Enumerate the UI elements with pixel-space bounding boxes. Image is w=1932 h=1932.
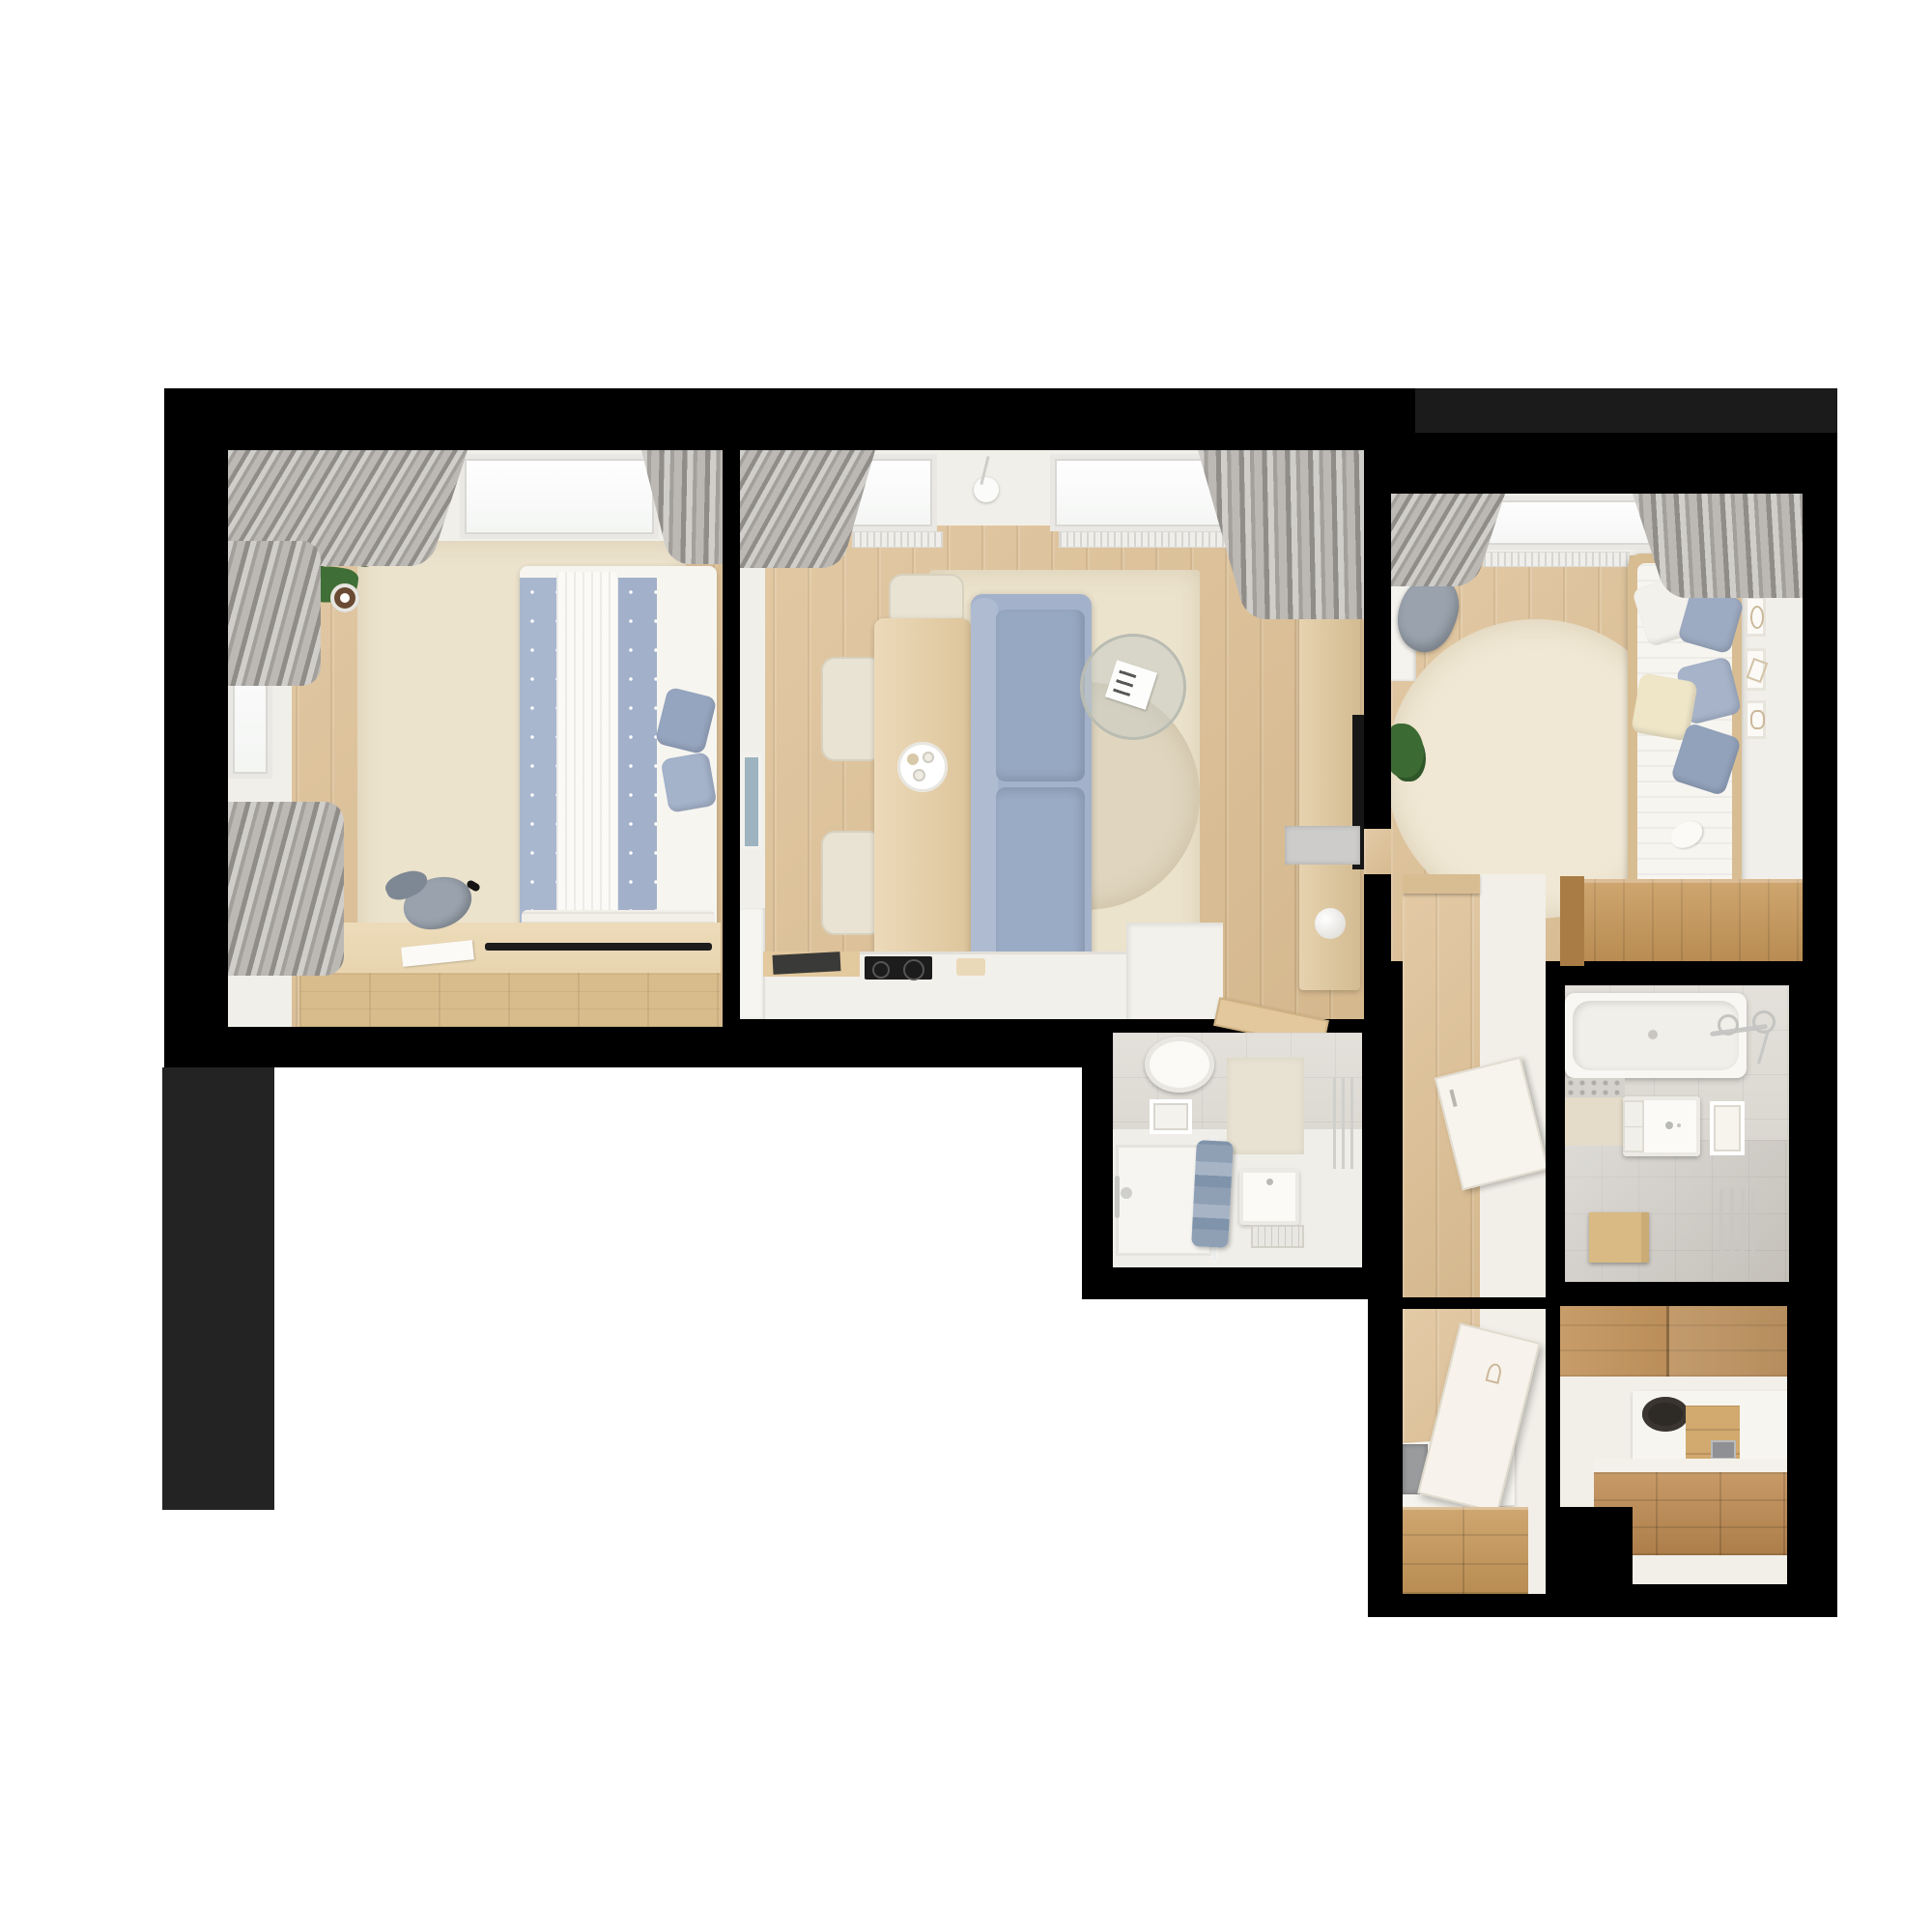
kitchen-block-right: [1126, 923, 1223, 1019]
hat: [1642, 1397, 1689, 1432]
sofa-cushion: [996, 610, 1085, 781]
bedroom-curtain-left: [228, 541, 321, 686]
dish-board: [773, 952, 841, 975]
towels: [1191, 1140, 1234, 1248]
bedroom-curtain-bottom-left: [228, 802, 344, 976]
wall-frame: [1745, 596, 1766, 637]
cabinet-light-door: [1669, 1306, 1787, 1377]
frame-art: [1750, 710, 1765, 729]
room-living-kitchen: [740, 450, 1364, 1019]
panel-hook: [1486, 1362, 1503, 1384]
room-closet: [1403, 1309, 1546, 1594]
bedroom-window-top: [460, 454, 659, 539]
living-curtain-left: [740, 450, 875, 568]
wooden-stool: [1589, 1212, 1649, 1263]
living-radiator-2: [1059, 531, 1244, 548]
bed-pillow: [655, 687, 718, 755]
entry-upper-cabinets: [1560, 1306, 1787, 1377]
shadow-block-left: [162, 1067, 274, 1510]
doormat: [1285, 826, 1360, 865]
shower-fixture: [1115, 1176, 1120, 1218]
basin-faucet: [1266, 1179, 1273, 1185]
closet-drawers: [1403, 1507, 1528, 1594]
cutting-board: [956, 958, 985, 976]
floor-drain: [1251, 1225, 1304, 1248]
small-device: [1711, 1440, 1736, 1460]
magazines: [1105, 660, 1157, 710]
washbasin: [1239, 1169, 1299, 1225]
kids-radiator: [1483, 552, 1630, 567]
shadow-block-top-right: [1415, 388, 1837, 433]
living-radiator-1: [852, 531, 943, 548]
living-curtain-right: [1198, 450, 1364, 619]
room-shower: [1113, 1033, 1362, 1267]
mirror: [1710, 1101, 1745, 1155]
plant-pot: [330, 583, 359, 612]
wall-frame: [1745, 700, 1766, 739]
sink-faucet: [1665, 1122, 1673, 1129]
entry-notch: [1560, 1507, 1633, 1584]
bath-faucet: [1710, 1007, 1777, 1065]
keyboard-tray: [485, 943, 712, 951]
desk: [299, 923, 721, 1027]
bed-duvet-pleats: [556, 572, 618, 962]
tv-bench: [1299, 599, 1360, 990]
wall-frame: [1745, 648, 1766, 691]
room-bathroom: [1565, 985, 1789, 1282]
frame-art: [1750, 606, 1764, 629]
sofa: [971, 594, 1092, 976]
frame-art: [1747, 658, 1769, 683]
decor-sphere: [1315, 908, 1346, 939]
wall-panel: [1227, 1058, 1304, 1154]
burner: [872, 961, 890, 979]
tub-drain: [1648, 1030, 1658, 1039]
double-bed: [520, 566, 717, 968]
hallway-shelf: [1403, 874, 1480, 894]
toilet: [1145, 1037, 1214, 1093]
hallway-side-cabinet: [1560, 876, 1584, 966]
floor-lamp: [956, 456, 1014, 514]
toiletry-shelf: [1565, 1078, 1625, 1097]
door-handle: [1449, 1090, 1457, 1107]
vanity-sink: [1623, 1096, 1700, 1156]
sofa-cushion: [996, 787, 1085, 959]
room-entry: [1560, 1306, 1787, 1584]
entry-counter-edge: [1594, 1459, 1787, 1472]
cooktop: [865, 956, 932, 980]
coffee-table: [1080, 634, 1186, 740]
picture-frame: [741, 753, 762, 850]
kids-curtain-left: [1391, 494, 1505, 586]
dining-table: [874, 618, 971, 980]
kids-wardrobe: [1565, 879, 1803, 961]
bed-runner-right: [618, 578, 657, 956]
faucet-cross: [1718, 1014, 1739, 1036]
faucet-cross: [1752, 1010, 1776, 1034]
bed-runner-left: [520, 578, 556, 956]
towel-rail: [1333, 1077, 1354, 1169]
shower-handle: [1121, 1187, 1132, 1199]
towel-radiator: [1719, 1188, 1754, 1258]
wall-mass-right-top: [1368, 388, 1415, 435]
bed-pillow: [661, 752, 718, 813]
tall-cabinet: [740, 908, 765, 1019]
desk-drawer-front: [299, 973, 721, 1027]
floor-plan-canvas: [0, 0, 1932, 1932]
cup: [913, 769, 925, 781]
desk-papers: [401, 940, 474, 967]
office-chair: [385, 872, 480, 932]
room-bedroom: [228, 450, 723, 1027]
sofa-back: [971, 598, 998, 972]
shower-hose: [1757, 1030, 1770, 1064]
lamp-shade: [974, 477, 999, 502]
room-hallway: [1403, 874, 1546, 1297]
wall-niche: [1150, 1099, 1192, 1134]
cup: [907, 753, 919, 765]
serving-tray: [897, 742, 948, 792]
burner: [903, 959, 924, 980]
kitchen-worktop-wood: [763, 952, 860, 977]
vanity-drawers: [1623, 1100, 1644, 1152]
cup: [923, 752, 934, 763]
